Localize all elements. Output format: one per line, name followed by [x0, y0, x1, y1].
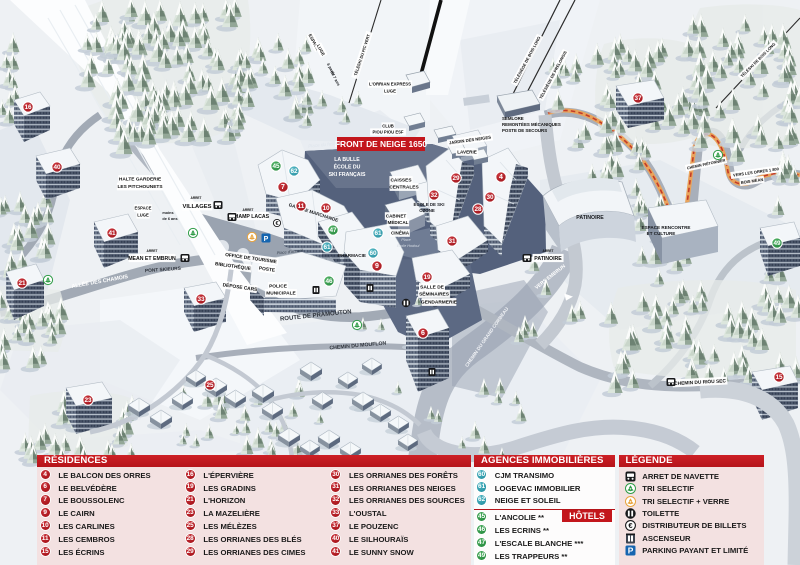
svg-text:CAISSES: CAISSES	[390, 178, 412, 184]
svg-text:L'ORRIAN EXPRESS: L'ORRIAN EXPRESS	[369, 82, 411, 87]
svg-text:MUNICIPALE: MUNICIPALE	[266, 291, 296, 297]
svg-text:45: 45	[272, 163, 280, 170]
svg-text:21: 21	[18, 280, 26, 287]
svg-text:33: 33	[197, 296, 205, 303]
svg-text:moins: moins	[162, 211, 173, 215]
svg-text:ARRET: ARRET	[147, 249, 158, 253]
svg-text:ET CULTURE: ET CULTURE	[647, 231, 676, 236]
svg-text:de 6 ans: de 6 ans	[162, 217, 177, 221]
svg-text:41: 41	[108, 230, 116, 237]
svg-text:PIOU PIOU ESF: PIOU PIOU ESF	[373, 130, 404, 135]
svg-text:CLUB: CLUB	[382, 124, 394, 129]
svg-text:Émile Hodoul: Émile Hodoul	[397, 243, 420, 248]
svg-text:SEMLORE: SEMLORE	[502, 116, 524, 121]
svg-text:23: 23	[84, 397, 92, 404]
svg-text:CHAMP LACAS: CHAMP LACAS	[231, 214, 270, 220]
svg-text:46: 46	[325, 278, 333, 285]
svg-text:FRONT DE NEIGE 1650: FRONT DE NEIGE 1650	[335, 139, 427, 149]
svg-text:REMONTÉES MÉCANIQUES: REMONTÉES MÉCANIQUES	[502, 122, 561, 127]
svg-text:POSTE DE SECOURS: POSTE DE SECOURS	[502, 128, 547, 133]
svg-text:ARRET: ARRET	[543, 249, 554, 253]
svg-text:62: 62	[290, 168, 298, 175]
svg-text:ÉCOLE DU: ÉCOLE DU	[334, 163, 361, 171]
svg-text:PHARMACIE: PHARMACIE	[338, 253, 366, 258]
svg-text:LES PITCHOUNETS: LES PITCHOUNETS	[117, 184, 163, 190]
svg-text:SKI FRANÇAIS: SKI FRANÇAIS	[329, 172, 366, 178]
svg-text:10: 10	[322, 205, 330, 212]
svg-text:OZONE: OZONE	[419, 208, 435, 213]
svg-text:VILLAGES: VILLAGES	[183, 204, 212, 210]
svg-text:POLICE: POLICE	[269, 284, 288, 290]
svg-text:ESPACE RENCONTRE: ESPACE RENCONTRE	[642, 225, 691, 230]
svg-text:MEAN ET EMBRUN: MEAN ET EMBRUN	[128, 256, 176, 262]
svg-text:PATINOIRE: PATINOIRE	[576, 215, 604, 221]
svg-text:PATINOIRE: PATINOIRE	[534, 256, 562, 262]
svg-text:ARRET: ARRET	[243, 208, 254, 212]
svg-text:LA BULLE: LA BULLE	[334, 157, 360, 163]
svg-text:P: P	[264, 236, 269, 243]
svg-text:MÉDICAL: MÉDICAL	[388, 218, 409, 225]
svg-text:7: 7	[281, 184, 285, 191]
svg-text:16: 16	[24, 104, 32, 111]
svg-text:37: 37	[634, 95, 642, 102]
svg-text:GENDARMERIE: GENDARMERIE	[421, 300, 458, 306]
svg-text:11: 11	[298, 203, 305, 210]
svg-text:SALLE DE: SALLE DE	[420, 285, 445, 291]
svg-text:47: 47	[329, 227, 337, 234]
svg-text:61: 61	[323, 244, 331, 251]
svg-text:LUGE: LUGE	[384, 89, 396, 94]
svg-text:30: 30	[486, 194, 494, 201]
svg-text:LUGE: LUGE	[137, 213, 149, 218]
svg-text:31: 31	[448, 238, 456, 245]
svg-text:29: 29	[452, 175, 460, 182]
svg-text:P: P	[627, 546, 633, 556]
svg-text:CINÉMA: CINÉMA	[391, 229, 410, 236]
svg-text:6: 6	[421, 330, 425, 337]
svg-text:40: 40	[53, 164, 61, 171]
svg-text:32: 32	[430, 192, 438, 199]
svg-text:60: 60	[369, 250, 377, 257]
svg-text:ARRET: ARRET	[191, 196, 202, 200]
svg-text:25: 25	[206, 382, 214, 389]
svg-text:28: 28	[474, 206, 482, 213]
svg-text:19: 19	[423, 274, 431, 281]
svg-text:ESPACE: ESPACE	[135, 206, 152, 211]
svg-text:HALTE GARDERIE: HALTE GARDERIE	[119, 177, 162, 183]
svg-text:Place: Place	[401, 238, 411, 242]
svg-text:61: 61	[374, 230, 382, 237]
svg-text:4: 4	[499, 174, 503, 181]
svg-text:CABINET: CABINET	[386, 214, 407, 219]
svg-text:LAVERIE: LAVERIE	[457, 150, 477, 155]
svg-text:9: 9	[375, 263, 379, 270]
svg-text:CENTRALES: CENTRALES	[389, 185, 419, 191]
svg-text:ÉCOLE DE SKI: ÉCOLE DE SKI	[414, 202, 445, 207]
svg-text:49: 49	[773, 240, 781, 247]
svg-text:15: 15	[775, 374, 783, 381]
